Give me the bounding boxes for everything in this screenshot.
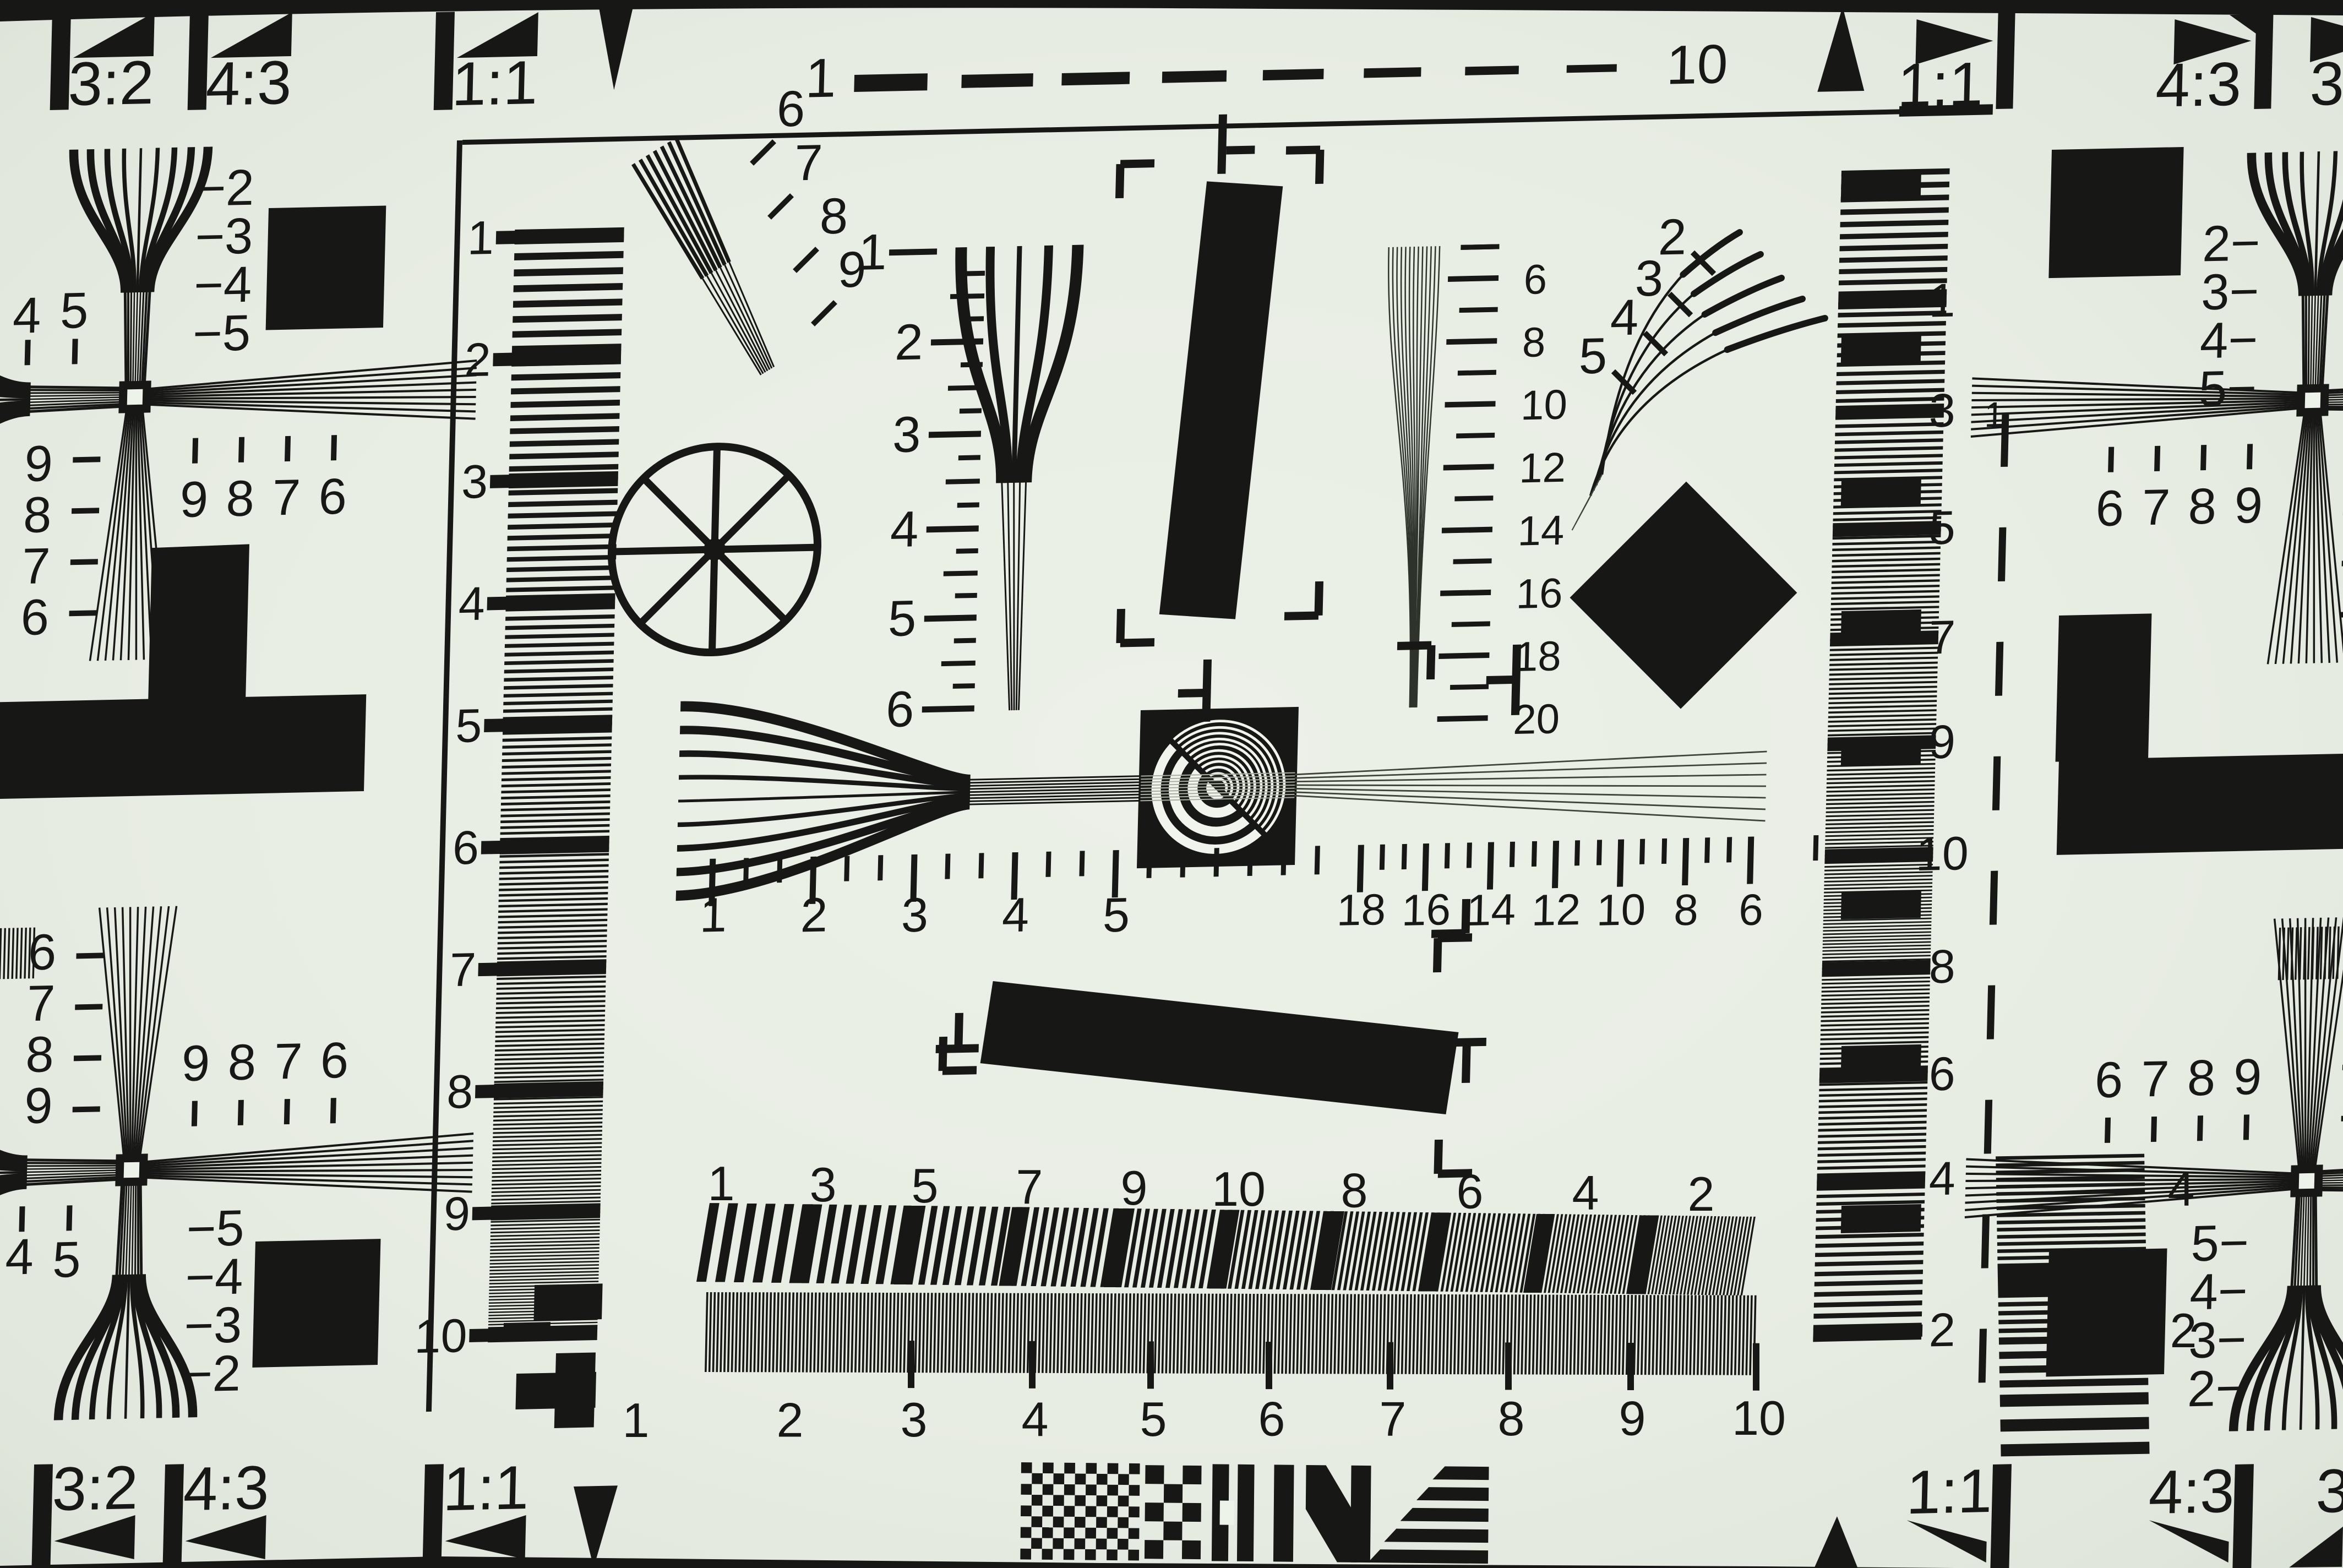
svg-text:5−: 5− bbox=[2191, 1215, 2249, 1272]
svg-text:4: 4 bbox=[1572, 1166, 1599, 1220]
svg-text:20: 20 bbox=[1512, 695, 1560, 743]
svg-text:12: 12 bbox=[1531, 885, 1581, 935]
svg-text:10: 10 bbox=[1212, 1162, 1266, 1216]
svg-text:3: 3 bbox=[901, 1392, 928, 1447]
svg-text:9: 9 bbox=[2233, 1049, 2263, 1106]
svg-text:6: 6 bbox=[452, 821, 480, 875]
svg-text:2: 2 bbox=[777, 1392, 804, 1447]
svg-text:6: 6 bbox=[1457, 1164, 1484, 1219]
svg-text:3: 3 bbox=[461, 455, 488, 509]
svg-text:5: 5 bbox=[887, 590, 917, 647]
svg-text:4: 4 bbox=[1022, 1392, 1049, 1447]
svg-text:4: 4 bbox=[1001, 888, 1029, 943]
svg-text:6: 6 bbox=[20, 589, 50, 646]
svg-text:4:3: 4:3 bbox=[205, 48, 292, 118]
svg-text:5: 5 bbox=[1140, 1392, 1167, 1446]
svg-text:18: 18 bbox=[1514, 633, 1562, 680]
svg-text:6: 6 bbox=[320, 1032, 350, 1089]
svg-text:1:1: 1:1 bbox=[451, 48, 538, 118]
svg-text:7: 7 bbox=[449, 943, 477, 997]
svg-text:4: 4 bbox=[890, 501, 919, 558]
svg-text:2: 2 bbox=[800, 888, 828, 943]
svg-text:1:1: 1:1 bbox=[442, 1453, 530, 1523]
svg-text:5−: 5− bbox=[2198, 360, 2257, 417]
svg-text:6: 6 bbox=[1738, 885, 1764, 935]
svg-text:7: 7 bbox=[21, 538, 51, 595]
svg-text:7: 7 bbox=[2142, 479, 2171, 536]
svg-text:4: 4 bbox=[12, 287, 42, 344]
svg-text:16: 16 bbox=[1401, 885, 1451, 935]
svg-text:2: 2 bbox=[894, 314, 924, 371]
svg-text:3: 3 bbox=[810, 1157, 837, 1212]
svg-text:8: 8 bbox=[2187, 1050, 2216, 1107]
svg-text:5: 5 bbox=[455, 699, 482, 753]
svg-text:7: 7 bbox=[26, 975, 56, 1032]
svg-text:4: 4 bbox=[458, 578, 486, 631]
svg-text:9: 9 bbox=[2234, 477, 2264, 534]
svg-text:1: 1 bbox=[708, 1156, 735, 1211]
svg-text:6: 6 bbox=[1258, 1392, 1285, 1446]
svg-text:9: 9 bbox=[24, 1077, 53, 1134]
svg-text:1:1: 1:1 bbox=[1906, 1456, 1993, 1527]
svg-text:2: 2 bbox=[2170, 1303, 2197, 1358]
svg-text:8: 8 bbox=[1928, 940, 1956, 993]
svg-text:2: 2 bbox=[1688, 1167, 1715, 1221]
svg-text:14: 14 bbox=[1517, 507, 1565, 555]
svg-text:8: 8 bbox=[1673, 885, 1699, 935]
svg-text:6: 6 bbox=[318, 469, 348, 525]
svg-text:4:3: 4:3 bbox=[2155, 50, 2242, 120]
svg-text:10: 10 bbox=[1666, 33, 1729, 96]
svg-text:2: 2 bbox=[1928, 1304, 1956, 1357]
svg-text:3:2: 3:2 bbox=[2309, 48, 2343, 118]
svg-text:9: 9 bbox=[181, 1035, 211, 1092]
svg-text:4: 4 bbox=[4, 1229, 34, 1286]
svg-text:6: 6 bbox=[28, 924, 57, 981]
svg-text:7: 7 bbox=[1016, 1159, 1043, 1214]
svg-text:4: 4 bbox=[1610, 290, 1639, 346]
svg-text:4:3: 4:3 bbox=[2148, 1456, 2235, 1527]
svg-text:−5: −5 bbox=[186, 1200, 245, 1257]
svg-text:2: 2 bbox=[464, 333, 492, 386]
svg-text:18: 18 bbox=[1336, 885, 1386, 935]
svg-text:9: 9 bbox=[837, 242, 867, 298]
svg-text:1: 1 bbox=[467, 211, 494, 265]
svg-text:1: 1 bbox=[699, 888, 727, 943]
svg-text:10: 10 bbox=[414, 1309, 468, 1363]
svg-text:10: 10 bbox=[1732, 1391, 1786, 1445]
svg-text:6: 6 bbox=[1928, 1048, 1956, 1101]
svg-text:8: 8 bbox=[1341, 1163, 1368, 1217]
svg-text:4: 4 bbox=[2168, 1162, 2195, 1216]
svg-text:9: 9 bbox=[24, 435, 53, 492]
svg-text:9: 9 bbox=[1619, 1391, 1646, 1445]
svg-text:8: 8 bbox=[2188, 478, 2217, 535]
svg-text:3:2: 3:2 bbox=[52, 1453, 139, 1523]
svg-text:3: 3 bbox=[901, 888, 929, 943]
svg-text:8: 8 bbox=[1498, 1391, 1525, 1446]
svg-text:4: 4 bbox=[1928, 1152, 1956, 1205]
svg-text:5: 5 bbox=[52, 1232, 81, 1288]
svg-text:6: 6 bbox=[1523, 256, 1548, 303]
svg-text:7: 7 bbox=[2140, 1051, 2170, 1108]
svg-text:7: 7 bbox=[1380, 1391, 1407, 1446]
svg-text:7: 7 bbox=[274, 1033, 303, 1090]
svg-text:3: 3 bbox=[892, 406, 922, 463]
svg-text:4:3: 4:3 bbox=[183, 1453, 270, 1523]
svg-text:1: 1 bbox=[805, 47, 837, 109]
svg-text:3:2: 3:2 bbox=[67, 48, 155, 118]
svg-text:8: 8 bbox=[819, 188, 849, 244]
svg-text:10: 10 bbox=[1596, 885, 1646, 935]
svg-text:8: 8 bbox=[227, 1034, 257, 1091]
svg-text:8: 8 bbox=[25, 1026, 55, 1083]
svg-text:9: 9 bbox=[179, 471, 209, 528]
svg-text:−5: −5 bbox=[192, 305, 251, 362]
svg-text:9: 9 bbox=[443, 1187, 471, 1240]
svg-text:7: 7 bbox=[794, 134, 824, 191]
svg-text:5: 5 bbox=[59, 282, 89, 339]
svg-text:8: 8 bbox=[23, 487, 52, 543]
svg-text:5: 5 bbox=[1578, 328, 1608, 384]
svg-text:1:1: 1:1 bbox=[1897, 50, 1984, 120]
svg-text:9: 9 bbox=[1121, 1161, 1148, 1215]
svg-text:16: 16 bbox=[1516, 570, 1563, 618]
svg-text:8: 8 bbox=[226, 470, 255, 527]
svg-text:8: 8 bbox=[1522, 319, 1546, 366]
svg-text:1: 1 bbox=[623, 1393, 650, 1447]
svg-text:14: 14 bbox=[1466, 885, 1516, 935]
svg-text:6: 6 bbox=[2095, 480, 2125, 537]
svg-text:6: 6 bbox=[885, 681, 915, 738]
svg-text:12: 12 bbox=[1519, 444, 1567, 492]
svg-text:7: 7 bbox=[272, 469, 302, 526]
svg-text:10: 10 bbox=[1520, 382, 1568, 429]
svg-text:5: 5 bbox=[1102, 888, 1130, 943]
svg-text:6: 6 bbox=[776, 81, 806, 138]
svg-text:3:: 3: bbox=[2315, 1456, 2343, 1526]
svg-text:6: 6 bbox=[2094, 1052, 2124, 1108]
svg-text:8: 8 bbox=[446, 1065, 473, 1119]
svg-text:5: 5 bbox=[912, 1158, 939, 1213]
